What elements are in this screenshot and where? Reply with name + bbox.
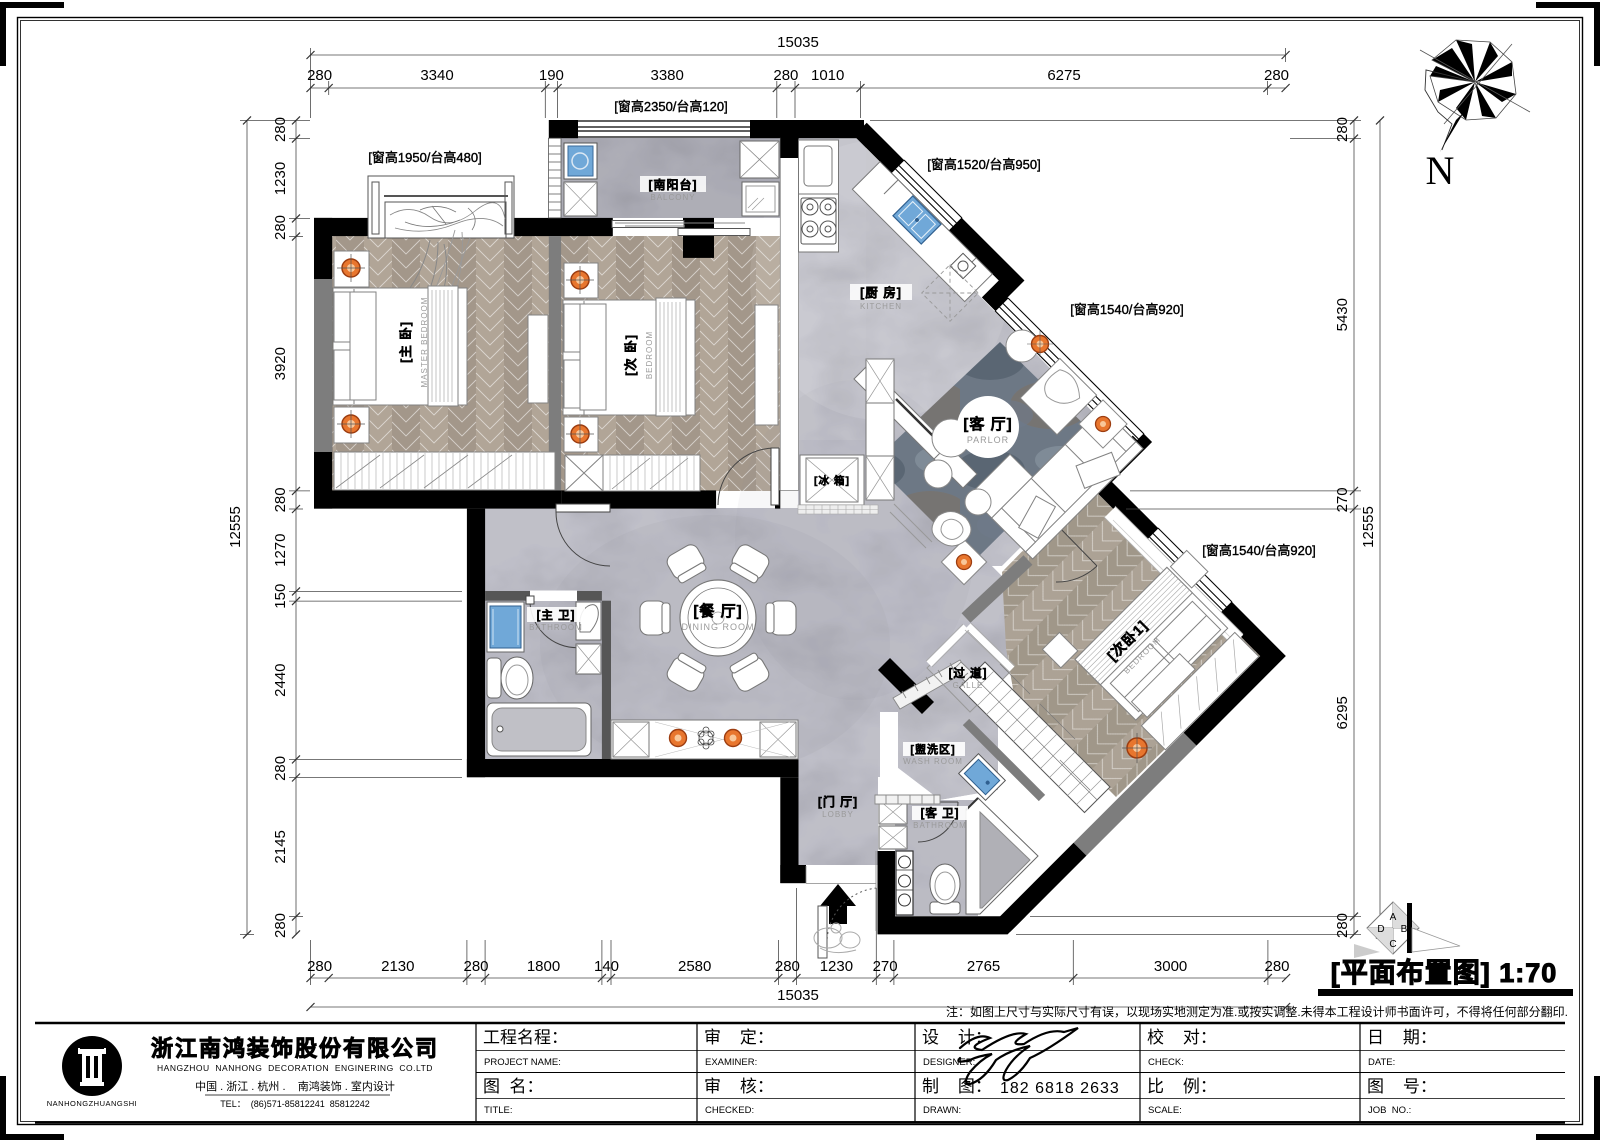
svg-text:[冰 箱]: [冰 箱] xyxy=(814,474,850,487)
svg-text:CHECK:: CHECK: xyxy=(1148,1057,1184,1068)
svg-text:浙江南鸿装饰股份有限公司: 浙江南鸿装饰股份有限公司 xyxy=(151,1036,439,1061)
svg-text:2580: 2580 xyxy=(678,958,711,975)
svg-text:DRAWN:: DRAWN: xyxy=(923,1105,961,1116)
svg-text:280: 280 xyxy=(463,958,488,975)
svg-text:[窗高1540/台高920]: [窗高1540/台高920] xyxy=(1202,543,1315,558)
svg-text:[盥洗区]: [盥洗区] xyxy=(910,742,955,756)
svg-text:SCALE:: SCALE: xyxy=(1148,1105,1182,1116)
svg-text:A: A xyxy=(1390,912,1397,923)
svg-text:6275: 6275 xyxy=(1047,67,1080,84)
svg-text:[主 卫]: [主 卫] xyxy=(537,608,576,622)
svg-text:D: D xyxy=(1377,924,1384,935)
svg-text:DINING ROOM: DINING ROOM xyxy=(682,622,755,632)
svg-text:图 号：: 图 号： xyxy=(1367,1077,1437,1096)
svg-text:[主 卧]: [主 卧] xyxy=(398,321,413,363)
svg-text:TEL： (86)571-85812241 858122: TEL： (86)571-85812241 85812242 xyxy=(220,1099,370,1109)
svg-text:制 图：: 制 图： xyxy=(922,1077,992,1096)
svg-text:15035: 15035 xyxy=(777,987,819,1004)
svg-text:图 名：: 图 名： xyxy=(483,1077,543,1096)
svg-text:[窗高1950/台高480]: [窗高1950/台高480] xyxy=(368,150,481,165)
svg-text:LOBBY: LOBBY xyxy=(822,810,854,819)
svg-text:1230: 1230 xyxy=(272,162,289,195)
svg-text:WASH ROOM: WASH ROOM xyxy=(903,757,963,766)
svg-text:HANGZHOU NANHONG DECORATION: HANGZHOU NANHONG DECORATION ENGINERING C… xyxy=(157,1063,433,1073)
svg-text:280: 280 xyxy=(775,958,800,975)
svg-text:[窗高1520/台高950]: [窗高1520/台高950] xyxy=(927,157,1040,172)
svg-text:270: 270 xyxy=(873,958,898,975)
svg-text:DESIGNER:: DESIGNER: xyxy=(923,1057,975,1068)
svg-text:[窗高2350/台高120]: [窗高2350/台高120] xyxy=(614,99,727,114)
svg-text:3000: 3000 xyxy=(1154,958,1187,975)
svg-text:[门 厅]: [门 厅] xyxy=(818,794,858,809)
svg-text:2130: 2130 xyxy=(381,958,414,975)
svg-text:280: 280 xyxy=(1334,913,1351,938)
svg-text:280: 280 xyxy=(307,67,332,84)
svg-text:GALLE: GALLE xyxy=(953,681,984,690)
svg-text:280: 280 xyxy=(272,117,289,142)
svg-text:注：如图上尺寸与实际尺寸有误，以现场实地测定为准.或按实调整: 注：如图上尺寸与实际尺寸有误，以现场实地测定为准.或按实调整.未得本工程设计师书… xyxy=(946,1004,1568,1019)
svg-text:[厨 房]: [厨 房] xyxy=(860,285,902,300)
svg-text:280: 280 xyxy=(272,215,289,240)
svg-text:[过 道]: [过 道] xyxy=(949,666,988,680)
svg-text:CHECKED:: CHECKED: xyxy=(705,1105,754,1116)
svg-text:BATHROOM: BATHROOM xyxy=(529,623,583,632)
svg-text:6295: 6295 xyxy=(1334,696,1351,729)
svg-text:280: 280 xyxy=(272,756,289,781)
svg-text:BEDROOM: BEDROOM xyxy=(645,331,654,379)
svg-text:日 期：: 日 期： xyxy=(1367,1028,1437,1047)
svg-text:C: C xyxy=(1389,939,1396,950)
svg-text:1270: 1270 xyxy=(272,534,289,567)
svg-text:1800: 1800 xyxy=(527,958,560,975)
svg-text:1230: 1230 xyxy=(820,958,853,975)
svg-text:DATE:: DATE: xyxy=(1368,1057,1395,1068)
svg-text:校 对：: 校 对： xyxy=(1147,1028,1217,1047)
svg-text:KITCHEN: KITCHEN xyxy=(860,302,902,311)
svg-text:MASTER BEDROOM: MASTER BEDROOM xyxy=(420,297,429,388)
svg-text:PARLOR: PARLOR xyxy=(967,435,1009,445)
svg-text:[餐 厅]: [餐 厅] xyxy=(693,602,742,620)
svg-text:[客 厅]: [客 厅] xyxy=(963,415,1012,433)
svg-text:12555: 12555 xyxy=(227,506,244,548)
svg-text:TITLE:: TITLE: xyxy=(484,1105,513,1116)
svg-text:1010: 1010 xyxy=(811,67,844,84)
svg-text:3380: 3380 xyxy=(651,67,684,84)
svg-text:NANHONGZHUANGSHI: NANHONGZHUANGSHI xyxy=(47,1099,138,1108)
svg-text:审 定：: 审 定： xyxy=(704,1028,774,1047)
svg-text:280: 280 xyxy=(272,913,289,938)
svg-text:[窗高1540/台高920]: [窗高1540/台高920] xyxy=(1070,302,1183,317)
svg-text:12555: 12555 xyxy=(1360,506,1377,548)
svg-text:190: 190 xyxy=(539,67,564,84)
svg-text:[客 卫]: [客 卫] xyxy=(921,806,960,820)
svg-text:280: 280 xyxy=(272,487,289,512)
svg-text:N: N xyxy=(1426,148,1455,193)
svg-text:中国 . 浙江 . 杭州 . 南鸿装饰 . 室内设计: 中国 . 浙江 . 杭州 . 南鸿装饰 . 室内设计 xyxy=(195,1079,395,1093)
svg-text:280: 280 xyxy=(1264,958,1289,975)
svg-text:5430: 5430 xyxy=(1334,298,1351,331)
svg-text:2765: 2765 xyxy=(967,958,1000,975)
svg-text:2145: 2145 xyxy=(272,830,289,863)
svg-text:3920: 3920 xyxy=(272,347,289,380)
svg-text:BATHROOM: BATHROOM xyxy=(913,821,967,830)
svg-text:150: 150 xyxy=(272,584,289,609)
svg-text:270: 270 xyxy=(1334,487,1351,512)
svg-text:[平面布置图] 1:70: [平面布置图] 1:70 xyxy=(1331,958,1558,988)
svg-text:15035: 15035 xyxy=(777,34,819,51)
svg-text:280: 280 xyxy=(1334,117,1351,142)
svg-text:B: B xyxy=(1401,924,1408,935)
svg-text:182 6818 2633: 182 6818 2633 xyxy=(1000,1080,1120,1097)
svg-text:280: 280 xyxy=(307,958,332,975)
svg-text:140: 140 xyxy=(594,958,619,975)
svg-text:BALCONY: BALCONY xyxy=(650,193,695,202)
svg-text:2440: 2440 xyxy=(272,664,289,697)
svg-text:280: 280 xyxy=(773,67,798,84)
svg-text:PROJECT NAME:: PROJECT NAME: xyxy=(484,1057,561,1068)
svg-text:工程名程：: 工程名程： xyxy=(483,1028,568,1047)
svg-text:审 核：: 审 核： xyxy=(704,1077,774,1096)
svg-text:JOB NO.:: JOB NO.: xyxy=(1368,1105,1411,1116)
svg-text:280: 280 xyxy=(1264,67,1289,84)
svg-text:3340: 3340 xyxy=(420,67,453,84)
svg-text:比 例：: 比 例： xyxy=(1147,1077,1217,1096)
svg-text:[次 卧]: [次 卧] xyxy=(623,334,638,376)
svg-text:EXAMINER:: EXAMINER: xyxy=(705,1057,757,1068)
svg-text:[南阳台]: [南阳台] xyxy=(649,177,698,192)
